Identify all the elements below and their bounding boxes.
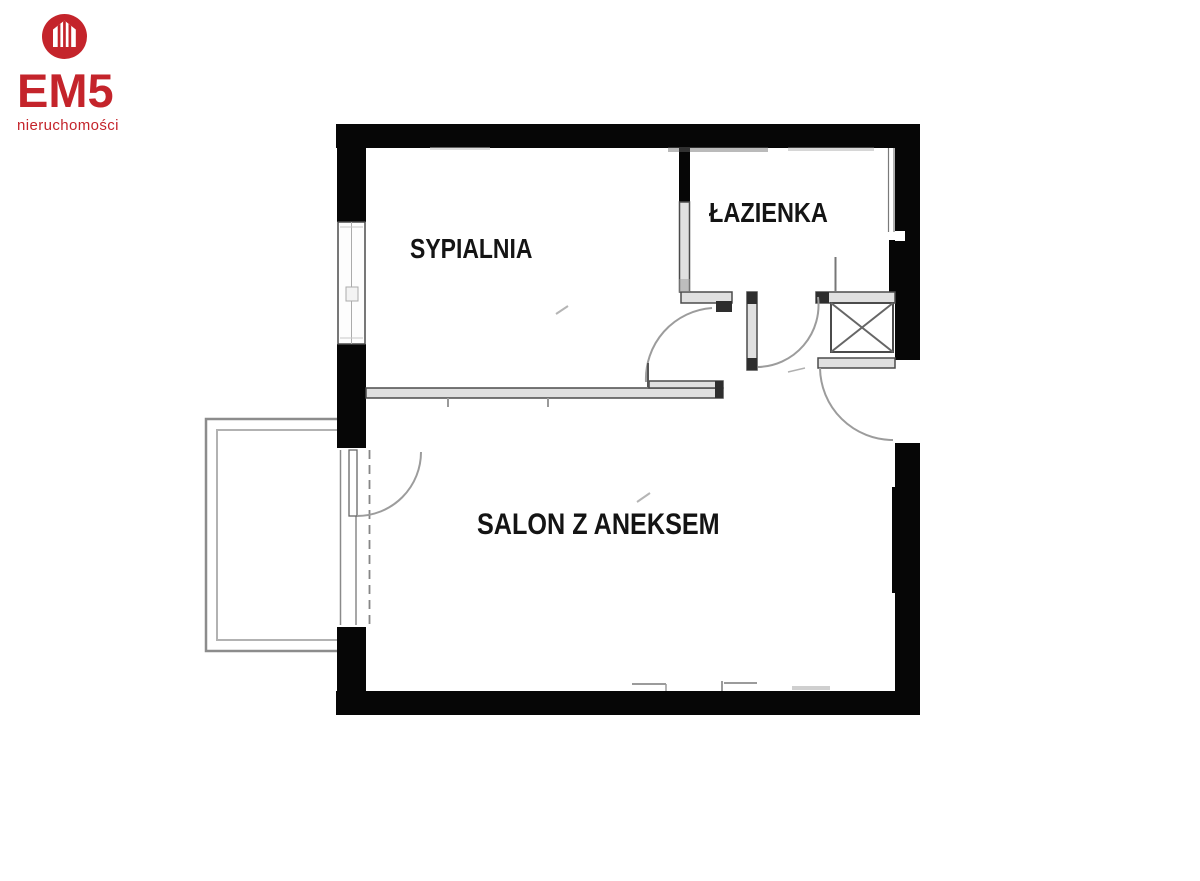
entrance-door-arc <box>820 368 893 440</box>
wall-right-inner-step <box>892 487 895 593</box>
wall-shaft-bottom <box>818 358 895 368</box>
room-label-salon: SALON Z ANEKSEM <box>477 508 720 542</box>
wall-bedroom-bottom-upper-line <box>649 381 723 388</box>
wall-bedroom-bottom <box>366 388 723 398</box>
bedroom-window <box>338 222 365 344</box>
wall-right-inner-patch <box>889 240 895 292</box>
wall-left-middle <box>337 344 366 448</box>
balcony-door <box>341 450 422 625</box>
balcony <box>206 419 337 651</box>
floor-plan-drawing <box>0 0 1200 881</box>
outer-walls <box>336 124 920 715</box>
balcony-door-leaf <box>349 450 357 516</box>
wall-end-caps <box>715 292 829 398</box>
wall-left-lower <box>337 627 366 715</box>
bedroom-door-arc <box>646 308 712 382</box>
wall-bottom <box>336 691 920 715</box>
wall-top <box>336 124 920 148</box>
wall-bathroom-left-thin <box>680 202 690 292</box>
wall-left-upper <box>337 124 366 222</box>
ventilation-shaft <box>831 257 893 352</box>
room-label-sypialnia: SYPIALNIA <box>410 233 532 265</box>
room-label-lazienka: ŁAZIENKA <box>709 197 828 229</box>
right-wall-inner-lines <box>889 148 895 232</box>
wall-notch <box>895 231 905 241</box>
floor-plan-page: EM5 nieruchomości <box>0 0 1200 881</box>
balcony-door-arc <box>357 452 421 516</box>
wall-bedroom-bathroom-black <box>679 148 690 202</box>
interior-walls <box>366 202 895 398</box>
wall-right-lower <box>895 443 920 715</box>
bathroom-door-arc <box>758 297 819 367</box>
wall-ticks <box>448 398 548 407</box>
wall-right-upper <box>895 124 920 360</box>
